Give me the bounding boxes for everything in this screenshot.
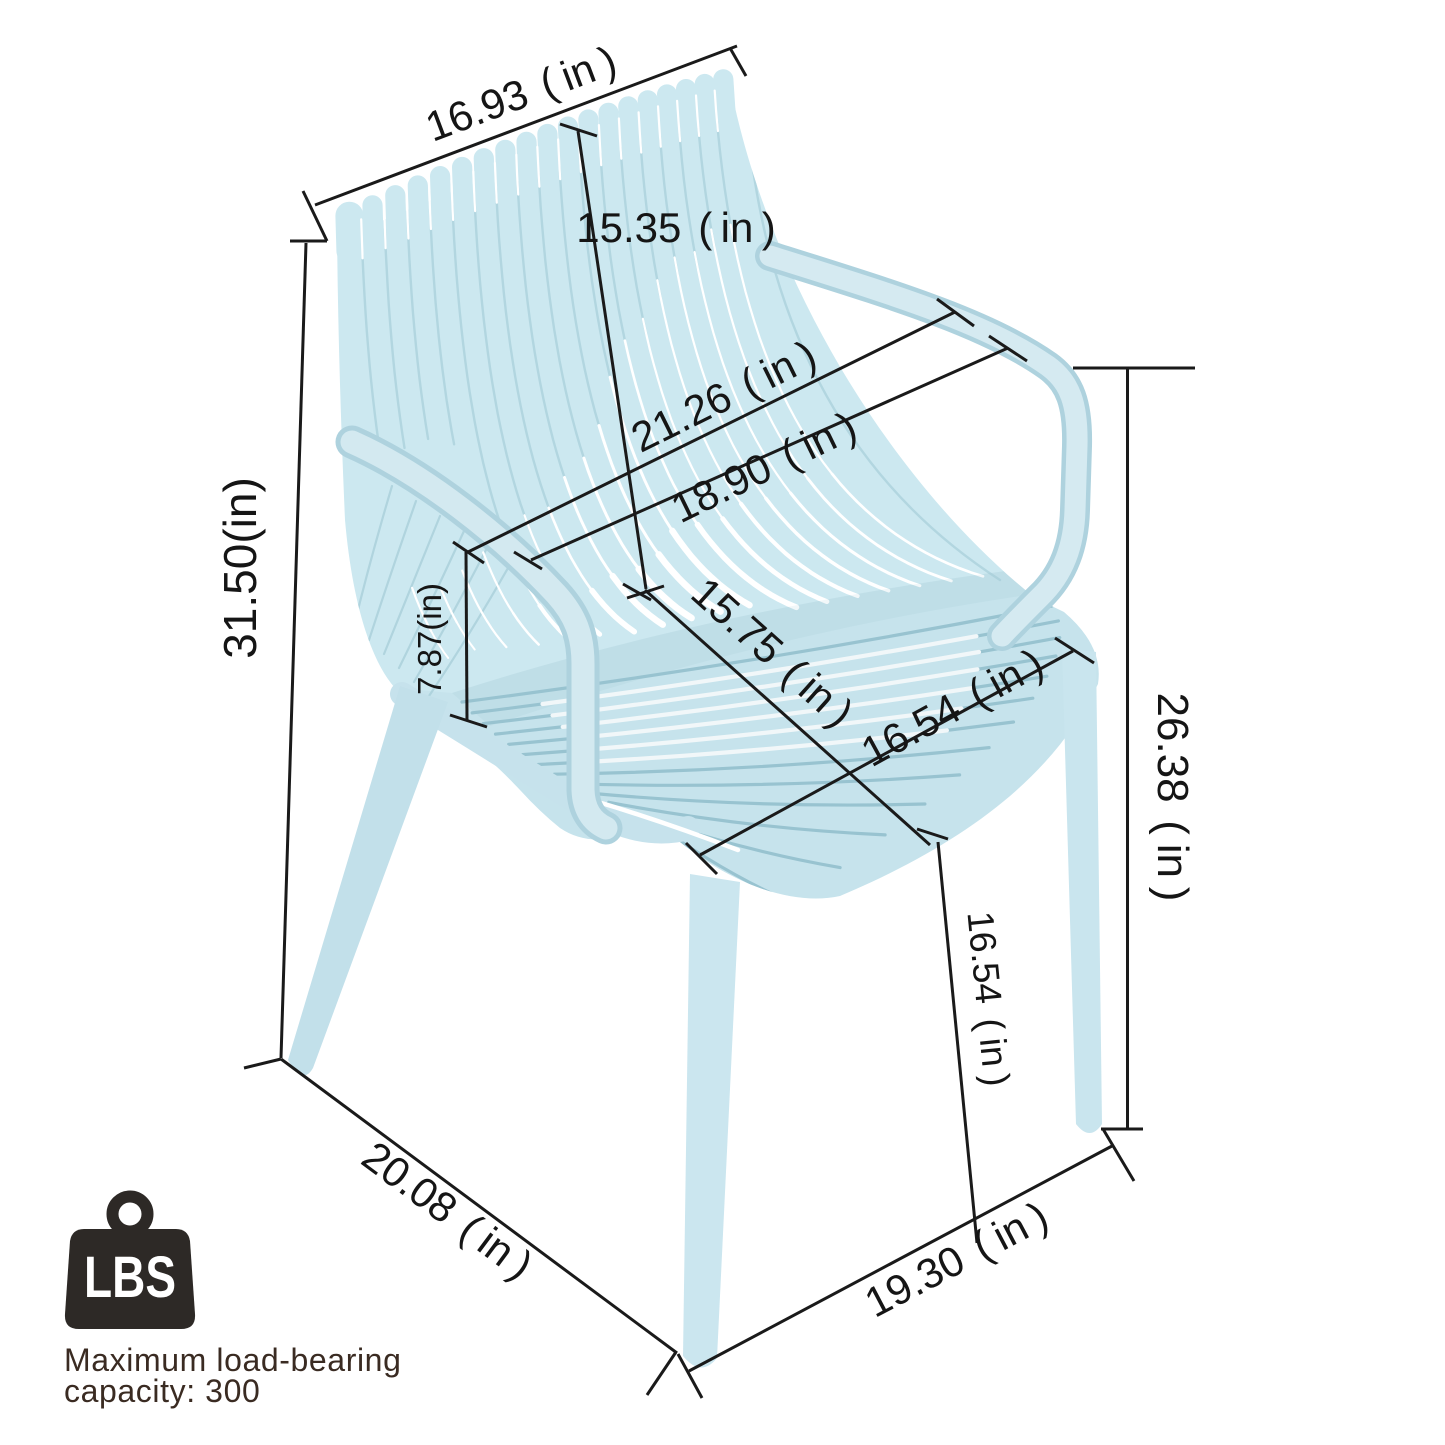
svg-text:31.50(in): 31.50(in): [214, 477, 266, 659]
svg-text:LBS: LBS: [84, 1245, 176, 1310]
svg-text:26.38 ( in ): 26.38 ( in ): [1148, 693, 1197, 902]
svg-text:capacity: 300: capacity: 300: [64, 1373, 260, 1409]
svg-text:7.87(in): 7.87(in): [411, 583, 448, 695]
svg-text:15.35 ( in ): 15.35 ( in ): [576, 204, 775, 251]
